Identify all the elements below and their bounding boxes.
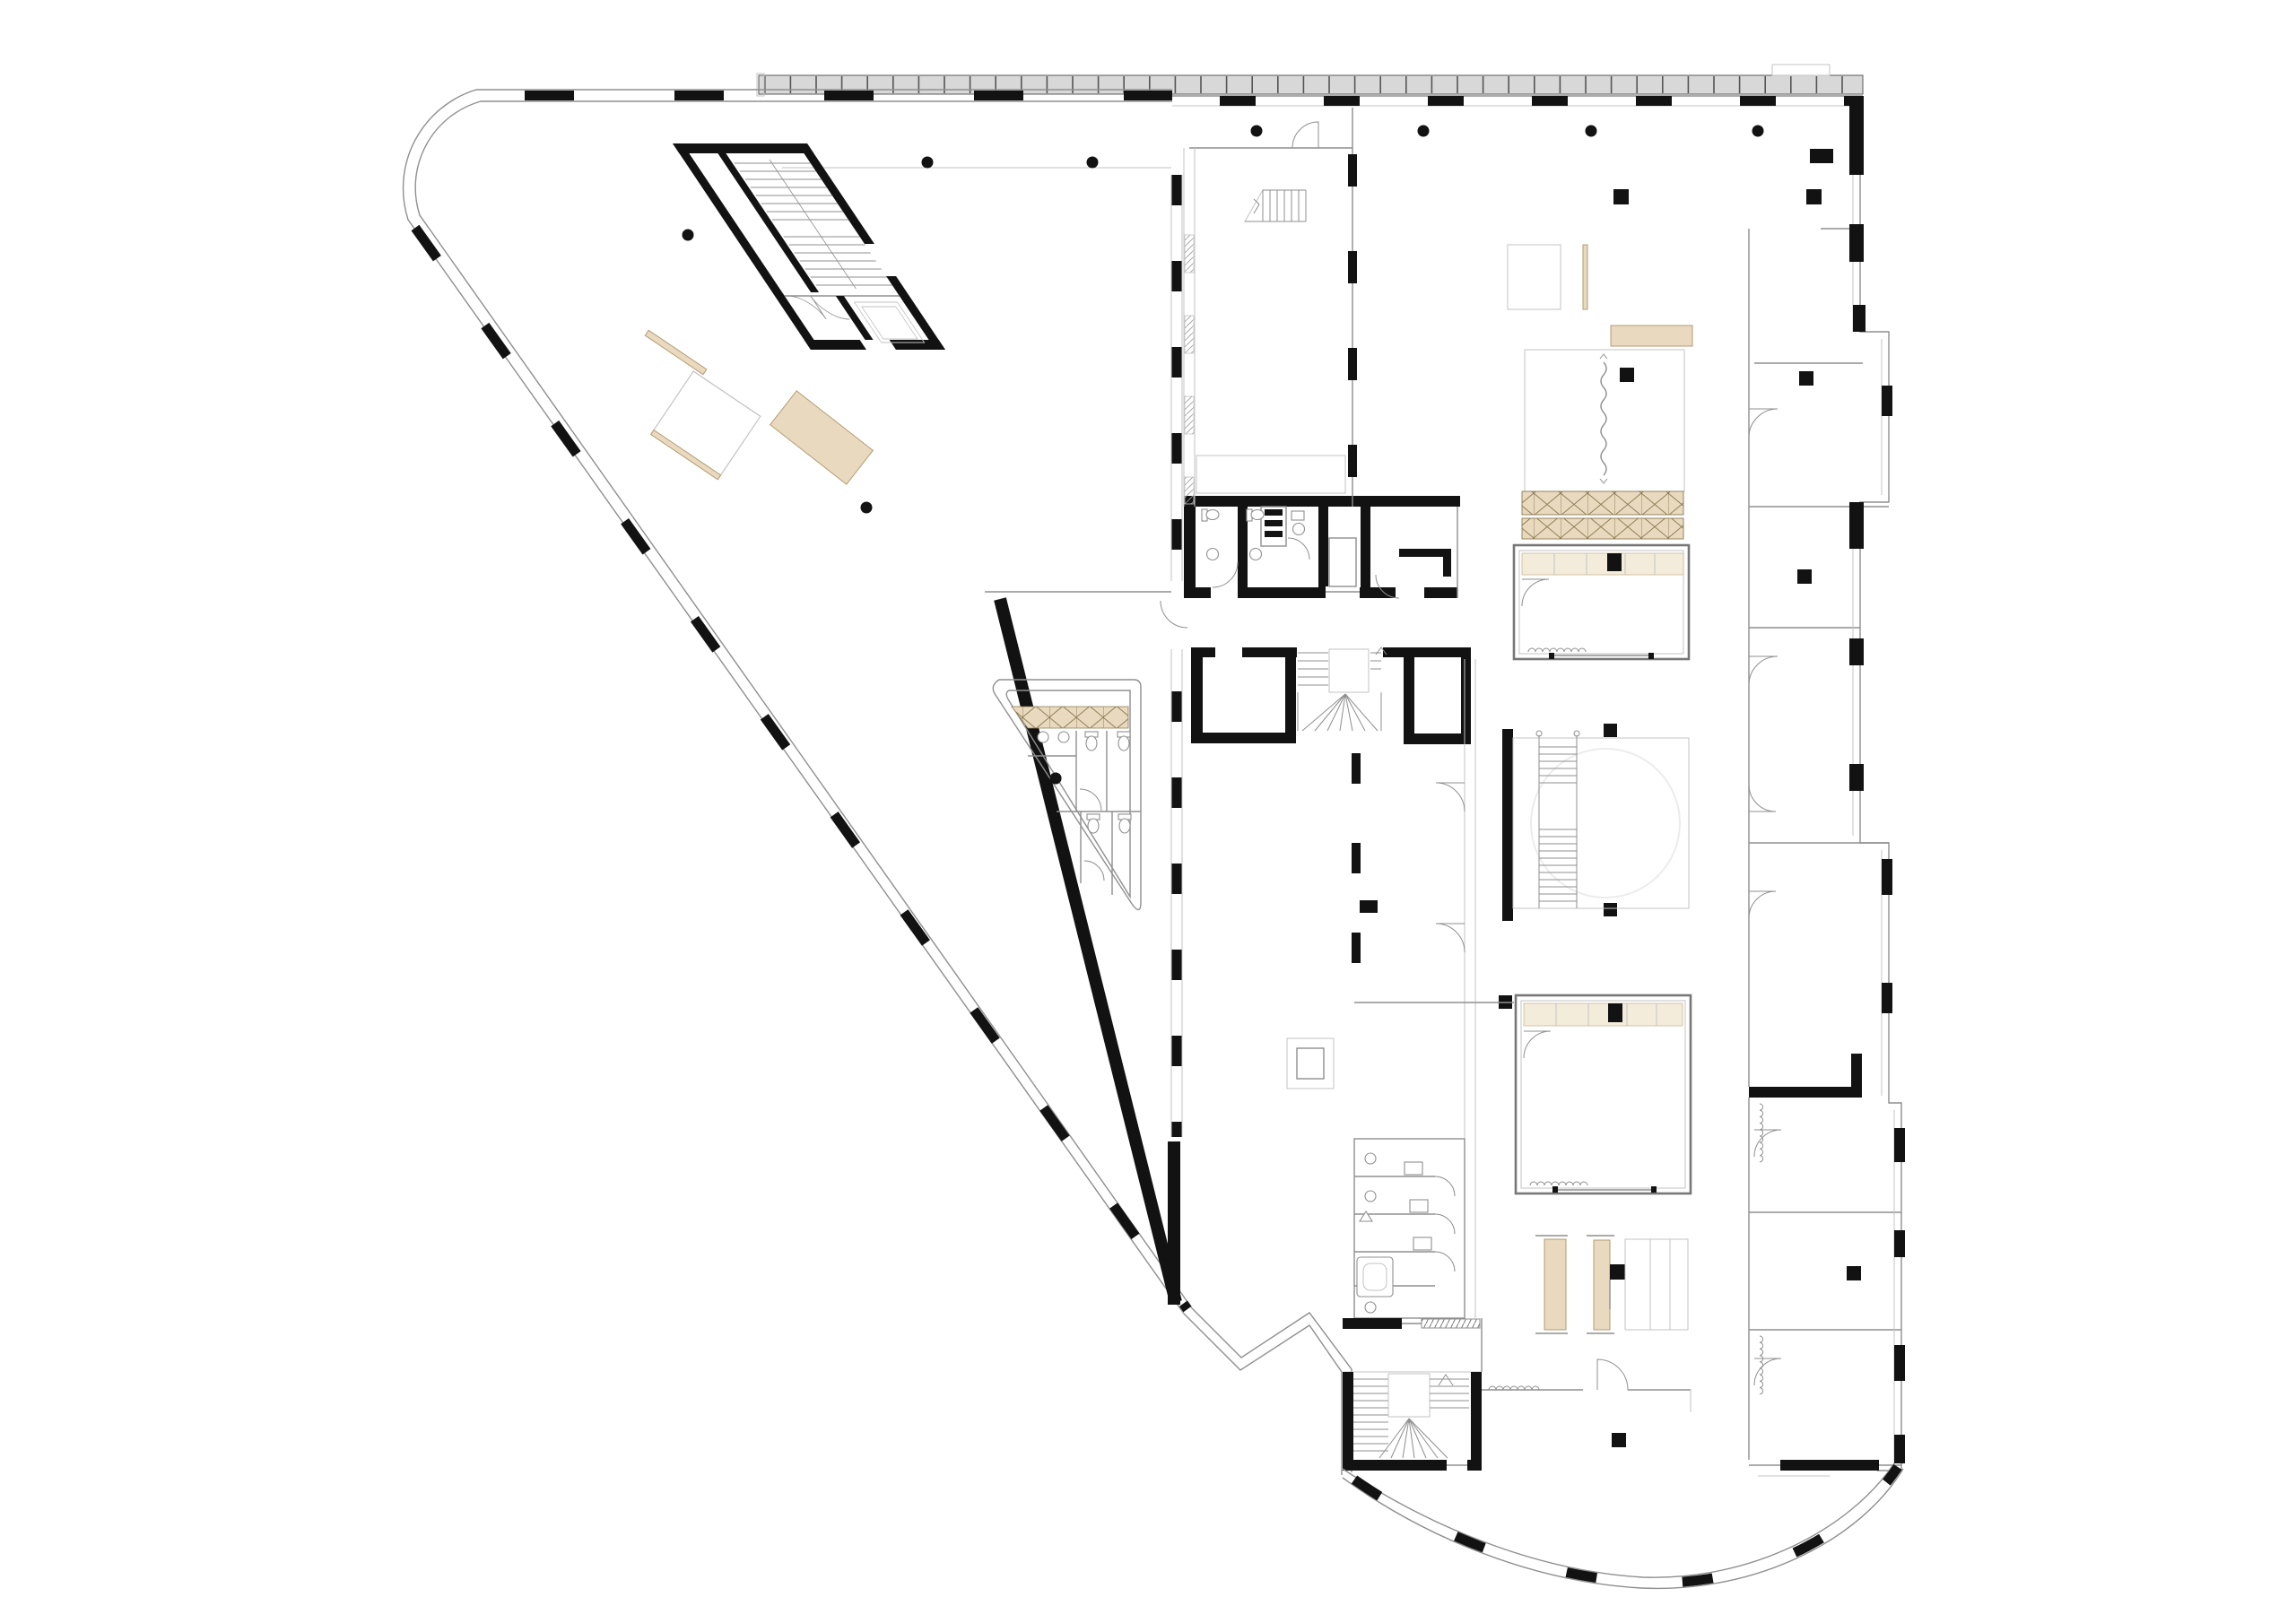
floor-plan-page (0, 0, 2296, 1623)
heavy-south-wall (1168, 1141, 1180, 1305)
sink (1365, 1302, 1376, 1313)
cabinet (1413, 1237, 1431, 1250)
toilet (1085, 732, 1098, 751)
paper-background (0, 0, 2296, 1623)
cabinet (1410, 1200, 1428, 1212)
toilet (1118, 732, 1130, 751)
heavy-wall-horizontal (1749, 1087, 1862, 1098)
toilet (1202, 509, 1219, 521)
heavy-wall-vertical (1851, 1054, 1862, 1098)
meeting-box-lower (1516, 995, 1691, 1193)
sink (1293, 524, 1305, 535)
toilet (1118, 814, 1131, 833)
sink (1207, 549, 1219, 560)
sink (1038, 732, 1048, 742)
sink (1250, 549, 1262, 560)
elevator-shaft-wall (1361, 496, 1370, 598)
tan-table (1611, 325, 1692, 346)
board-tan-edge (1583, 245, 1587, 309)
sink (1365, 1191, 1376, 1202)
sink (1058, 732, 1069, 742)
vent-grille (1422, 1319, 1480, 1328)
floor-plan-drawing (0, 0, 2296, 1623)
cabinet (1405, 1162, 1422, 1175)
toilet (1087, 814, 1100, 833)
cleaners-sink (1291, 511, 1304, 520)
toilet (1247, 509, 1264, 521)
meeting-box-upper (1514, 545, 1689, 659)
sink (1365, 1153, 1376, 1164)
wc-counter-hatched (1012, 707, 1128, 728)
